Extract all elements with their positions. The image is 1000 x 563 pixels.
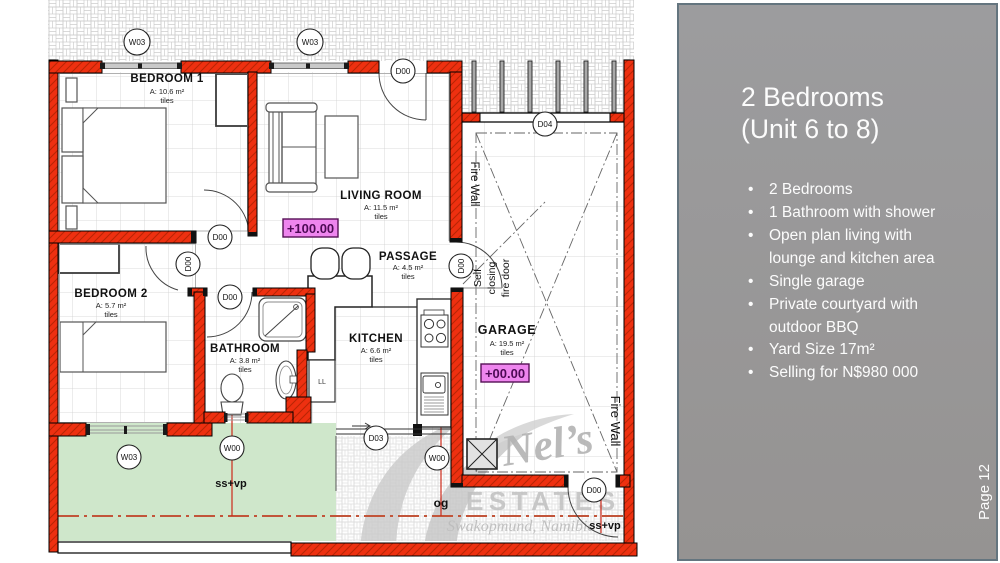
svg-text:closing: closing [486, 261, 498, 294]
svg-text:•: • [748, 364, 753, 381]
svg-text:A: 10.6 m²: A: 10.6 m² [150, 87, 185, 96]
svg-text:D04: D04 [538, 120, 553, 129]
svg-text:BEDROOM 2: BEDROOM 2 [74, 288, 147, 300]
svg-text:Fire Wall: Fire Wall [468, 162, 480, 207]
svg-text:D00: D00 [213, 233, 228, 242]
svg-text:2 Bedrooms: 2 Bedrooms [741, 82, 884, 112]
svg-text:W03: W03 [302, 38, 319, 47]
svg-text:tiles: tiles [369, 355, 383, 364]
svg-text:fire door: fire door [500, 258, 512, 297]
svg-text:LL: LL [318, 379, 326, 386]
svg-text:W00: W00 [429, 454, 446, 463]
svg-text:tiles: tiles [104, 310, 118, 319]
svg-text:2 Bedrooms: 2 Bedrooms [769, 181, 853, 198]
svg-text:Fire Wall: Fire Wall [608, 396, 623, 447]
svg-text:A: 11.5 m²: A: 11.5 m² [364, 203, 399, 212]
svg-text:Selling for N$980 000: Selling for N$980 000 [769, 364, 918, 381]
svg-text:Swakopmund, Namibia: Swakopmund, Namibia [447, 518, 595, 535]
svg-text:A: 5.7 m²: A: 5.7 m² [96, 301, 127, 310]
svg-text:Open plan living with: Open plan living with [769, 227, 912, 244]
svg-text:+00.00: +00.00 [485, 366, 525, 381]
svg-text:Private courtyard with: Private courtyard with [769, 296, 918, 313]
svg-text:lounge and kitchen area: lounge and kitchen area [769, 250, 935, 267]
svg-text:GARAGE: GARAGE [478, 323, 536, 337]
svg-text:KITCHEN: KITCHEN [349, 333, 403, 345]
svg-text:•: • [748, 227, 753, 244]
svg-text:LIVING ROOM: LIVING ROOM [340, 190, 422, 202]
svg-text:Self: Self [472, 269, 484, 287]
svg-text:Single garage: Single garage [769, 273, 865, 290]
svg-text:D00: D00 [457, 258, 466, 273]
svg-text:W03: W03 [121, 453, 138, 462]
svg-text:A: 3.8 m²: A: 3.8 m² [230, 356, 261, 365]
svg-text:BEDROOM 1: BEDROOM 1 [130, 73, 203, 85]
svg-text:tiles: tiles [238, 365, 252, 374]
svg-text:•: • [748, 204, 753, 221]
svg-text:(Unit 6 to 8): (Unit 6 to 8) [741, 114, 879, 144]
svg-text:•: • [748, 296, 753, 313]
svg-text:Page 12: Page 12 [976, 464, 993, 520]
svg-text:D00: D00 [184, 256, 193, 271]
svg-text:W00: W00 [224, 444, 241, 453]
svg-text:outdoor BBQ: outdoor BBQ [769, 319, 859, 336]
svg-text:A: 4.5 m²: A: 4.5 m² [393, 263, 424, 272]
svg-text:•: • [748, 341, 753, 358]
svg-text:tiles: tiles [401, 272, 415, 281]
svg-text:tiles: tiles [374, 212, 388, 221]
svg-text:D00: D00 [396, 67, 411, 76]
svg-text:Yard Size 17m²: Yard Size 17m² [769, 341, 875, 358]
svg-text:A: 6.6 m²: A: 6.6 m² [361, 346, 392, 355]
svg-text:PASSAGE: PASSAGE [379, 251, 437, 263]
svg-text:A: 19.5 m²: A: 19.5 m² [490, 339, 525, 348]
svg-text:1 Bathroom with shower: 1 Bathroom with shower [769, 204, 935, 221]
svg-text:ss+vp: ss+vp [215, 478, 247, 490]
svg-text:tiles: tiles [160, 96, 174, 105]
svg-text:D00: D00 [587, 486, 602, 495]
svg-text:BATHROOM: BATHROOM [210, 343, 280, 355]
svg-text:ss+vp: ss+vp [589, 520, 621, 532]
svg-text:•: • [748, 181, 753, 198]
svg-text:tiles: tiles [500, 348, 514, 357]
svg-text:•: • [748, 273, 753, 290]
svg-text:D00: D00 [223, 293, 238, 302]
svg-text:og: og [434, 496, 449, 510]
svg-text:+100.00: +100.00 [287, 221, 334, 236]
svg-text:D03: D03 [369, 434, 384, 443]
svg-text:W03: W03 [129, 38, 146, 47]
